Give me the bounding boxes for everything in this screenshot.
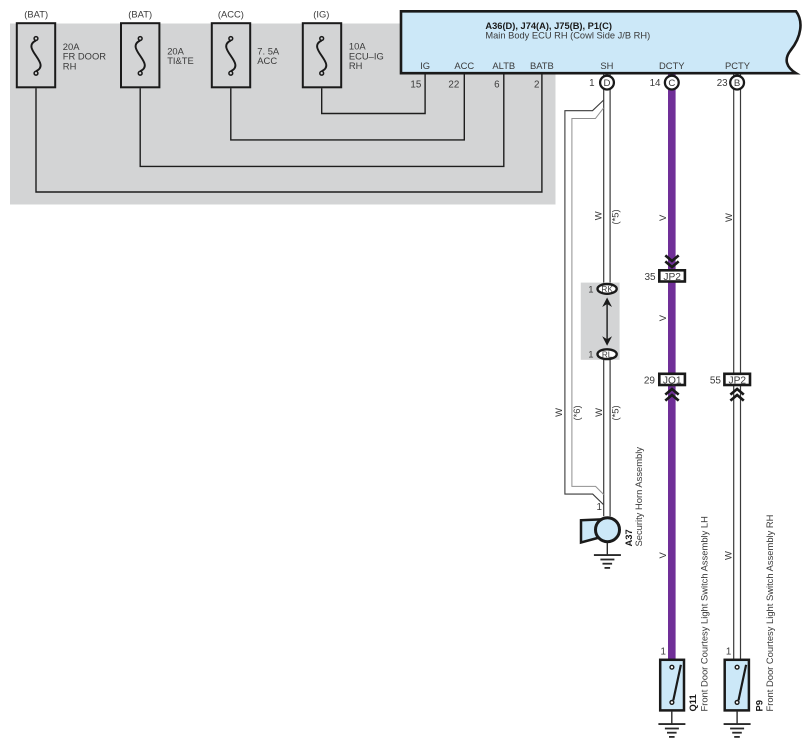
svg-text:1: 1 <box>597 502 602 513</box>
svg-text:IG: IG <box>420 60 430 71</box>
svg-text:RK: RK <box>601 285 613 294</box>
svg-text:RL: RL <box>602 350 613 359</box>
svg-text:22: 22 <box>448 80 459 91</box>
svg-text:W: W <box>723 213 734 222</box>
svg-text:DCTY: DCTY <box>659 60 685 71</box>
svg-text:35: 35 <box>644 272 656 283</box>
svg-text:(*5): (*5) <box>609 209 620 224</box>
svg-text:(*5): (*5) <box>609 405 620 420</box>
svg-text:(*6): (*6) <box>571 405 582 420</box>
svg-text:ALTB: ALTB <box>492 60 515 71</box>
svg-text:(ACC): (ACC) <box>218 8 244 19</box>
svg-text:(BAT): (BAT) <box>24 8 48 19</box>
svg-text:1: 1 <box>726 647 731 658</box>
svg-text:V: V <box>657 314 668 321</box>
svg-text:(IG): (IG) <box>313 8 329 19</box>
svg-text:V: V <box>657 552 668 559</box>
svg-text:A36(D), J74(A), J75(B), P1(C): A36(D), J74(A), J75(B), P1(C) <box>485 21 612 31</box>
svg-text:V: V <box>657 214 668 221</box>
svg-text:JP2: JP2 <box>729 375 747 386</box>
svg-text:Front Door Courtesy Light Swit: Front Door Courtesy Light Switch Assembl… <box>764 515 775 712</box>
svg-text:ACC: ACC <box>257 55 277 66</box>
svg-text:SH: SH <box>600 60 613 71</box>
svg-text:B: B <box>734 78 740 89</box>
svg-text:ACC: ACC <box>454 60 474 71</box>
svg-text:PCTY: PCTY <box>725 60 751 71</box>
svg-text:14: 14 <box>650 78 661 89</box>
svg-text:1: 1 <box>661 647 666 658</box>
svg-text:29: 29 <box>644 375 656 386</box>
svg-text:RH: RH <box>349 60 363 71</box>
svg-text:JQ1: JQ1 <box>663 375 682 386</box>
svg-text:15: 15 <box>410 80 421 91</box>
svg-text:1: 1 <box>588 285 593 296</box>
svg-text:W: W <box>593 408 604 417</box>
svg-text:23: 23 <box>717 78 728 89</box>
svg-text:2: 2 <box>534 80 539 91</box>
svg-text:BATB: BATB <box>530 60 554 71</box>
svg-text:1: 1 <box>589 78 594 89</box>
svg-text:Security Horn Assembly: Security Horn Assembly <box>633 447 644 547</box>
svg-text:RH: RH <box>63 60 77 71</box>
svg-text:Main Body ECU RH (Cowl Side J/: Main Body ECU RH (Cowl Side J/B RH) <box>485 31 650 41</box>
svg-text:Q11: Q11 <box>687 694 698 711</box>
svg-text:C: C <box>668 78 675 89</box>
svg-text:1: 1 <box>588 350 593 361</box>
svg-text:55: 55 <box>710 375 722 386</box>
svg-text:6: 6 <box>494 80 500 91</box>
svg-text:W: W <box>723 551 734 560</box>
svg-text:W: W <box>593 211 604 220</box>
svg-text:(BAT): (BAT) <box>128 8 152 19</box>
svg-text:D: D <box>604 78 611 89</box>
svg-text:JP2: JP2 <box>663 272 681 283</box>
svg-text:TI&TE: TI&TE <box>167 55 194 66</box>
svg-text:P9: P9 <box>753 700 764 711</box>
svg-text:Front Door Courtesy Light Swit: Front Door Courtesy Light Switch Assembl… <box>699 516 710 711</box>
svg-text:W: W <box>553 408 564 417</box>
